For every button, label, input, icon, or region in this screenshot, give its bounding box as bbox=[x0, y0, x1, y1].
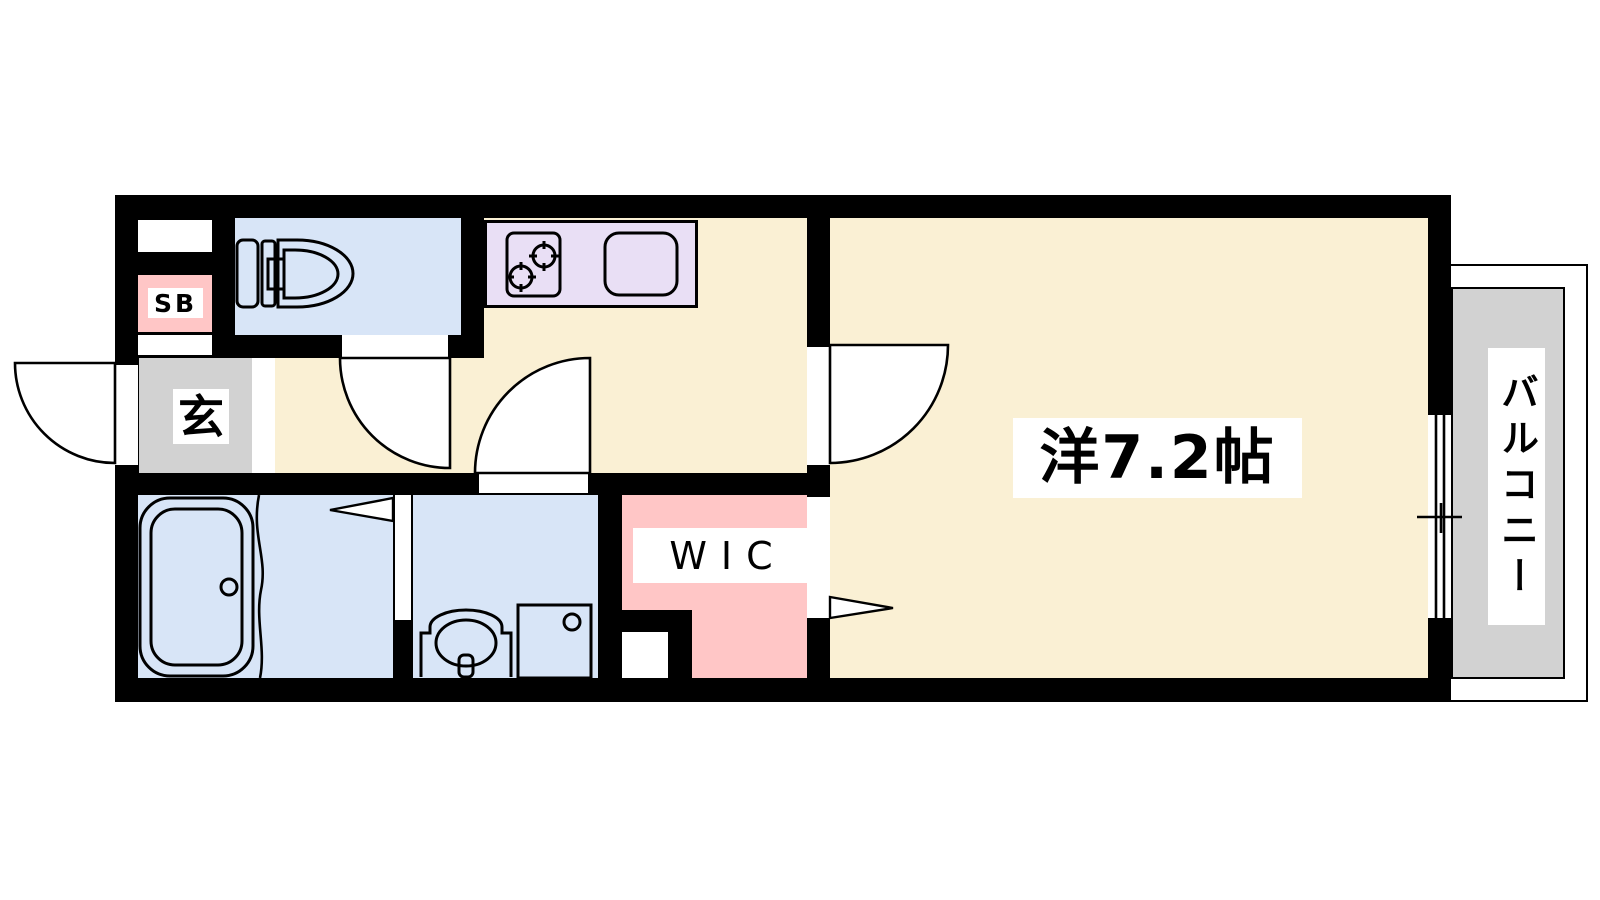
floor-plan: 洋7.2帖 WIC 玄 SB バルコニー bbox=[0, 0, 1600, 900]
washbasin-icon bbox=[421, 610, 511, 677]
toilet-icon bbox=[237, 240, 353, 307]
fixtures-layer bbox=[0, 0, 1600, 900]
lavatory-door bbox=[475, 358, 590, 473]
washing-machine-pan-icon bbox=[518, 605, 591, 678]
bathroom-door-direction-triangle bbox=[330, 498, 393, 521]
bathroom-partition-line bbox=[257, 495, 263, 678]
sliding-window-icon bbox=[1417, 415, 1462, 618]
toilet-door bbox=[340, 358, 450, 468]
main-room-label: 洋7.2帖 bbox=[1013, 418, 1302, 498]
main-room-door bbox=[830, 345, 948, 463]
shoe-box-label: SB bbox=[148, 288, 203, 318]
kitchen-sink-icon bbox=[605, 233, 677, 295]
bathtub-icon bbox=[140, 495, 263, 678]
wic-label: WIC bbox=[633, 528, 813, 583]
entrance-label: 玄 bbox=[173, 389, 229, 444]
entrance-door bbox=[15, 363, 115, 463]
wic-door-direction-triangle bbox=[830, 597, 893, 618]
balcony-label: バルコニー bbox=[1488, 348, 1545, 625]
gas-stove-icon bbox=[506, 233, 560, 296]
